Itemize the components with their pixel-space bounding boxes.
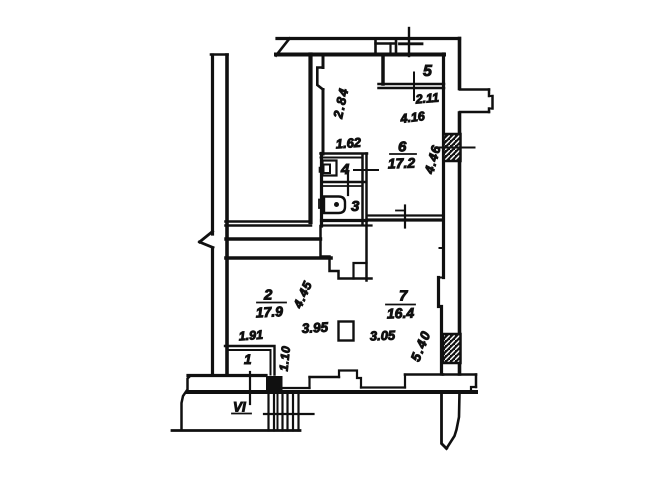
- svg-text:4: 4: [340, 161, 350, 178]
- svg-text:3.05: 3.05: [370, 328, 397, 344]
- svg-text:4.46: 4.46: [421, 143, 444, 176]
- svg-text:2: 2: [263, 287, 273, 304]
- svg-text:1: 1: [244, 352, 252, 367]
- svg-text:3: 3: [351, 198, 360, 215]
- svg-text:1.10: 1.10: [277, 345, 294, 372]
- svg-text:VI: VI: [233, 400, 246, 415]
- svg-text:2.11: 2.11: [414, 90, 440, 106]
- svg-text:5.40: 5.40: [408, 328, 434, 364]
- svg-text:3.95: 3.95: [301, 320, 329, 336]
- svg-text:17.9: 17.9: [255, 303, 283, 320]
- svg-text:6: 6: [398, 139, 407, 156]
- svg-text:17.2: 17.2: [388, 155, 416, 172]
- svg-text:7: 7: [399, 288, 408, 305]
- svg-text:4.16: 4.16: [399, 109, 427, 126]
- svg-text:5: 5: [423, 63, 433, 80]
- svg-text:4.45: 4.45: [291, 279, 316, 312]
- svg-text:1.62: 1.62: [335, 135, 362, 152]
- svg-text:2.84: 2.84: [330, 86, 351, 121]
- svg-text:16.4: 16.4: [387, 305, 415, 322]
- svg-text:1.91: 1.91: [238, 328, 263, 344]
